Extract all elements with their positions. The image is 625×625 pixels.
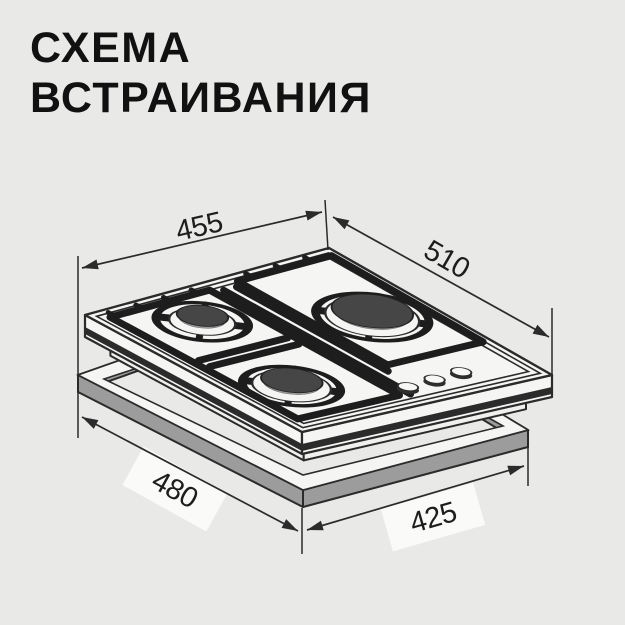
page-title: СХЕМАВСТРАИВАНИЯ	[30, 24, 372, 124]
arrowhead	[507, 466, 524, 476]
page-title-line1: СХЕМА	[30, 24, 372, 74]
grate-nub	[246, 274, 252, 278]
page: СХЕМАВСТРАИВАНИЯ	[0, 0, 625, 625]
grate-nub	[275, 266, 281, 270]
grate-nub	[305, 257, 312, 261]
arrowhead	[82, 417, 98, 429]
grate-nub	[163, 297, 169, 301]
arrowhead	[533, 325, 549, 337]
arrowhead	[282, 519, 298, 531]
grate-nub	[191, 290, 197, 294]
extension-line-top	[325, 200, 328, 250]
arrowhead	[305, 211, 322, 221]
dimension-label-hob-width: 455	[173, 206, 226, 248]
arrowhead	[333, 217, 349, 229]
grate-nub	[136, 305, 142, 308]
arrowhead	[307, 521, 324, 531]
page-title-line2: ВСТРАИВАНИЯ	[30, 74, 372, 124]
grate-nub	[108, 313, 114, 316]
arrowhead	[82, 260, 99, 270]
dimension-label-hob-depth: 510	[418, 234, 475, 285]
